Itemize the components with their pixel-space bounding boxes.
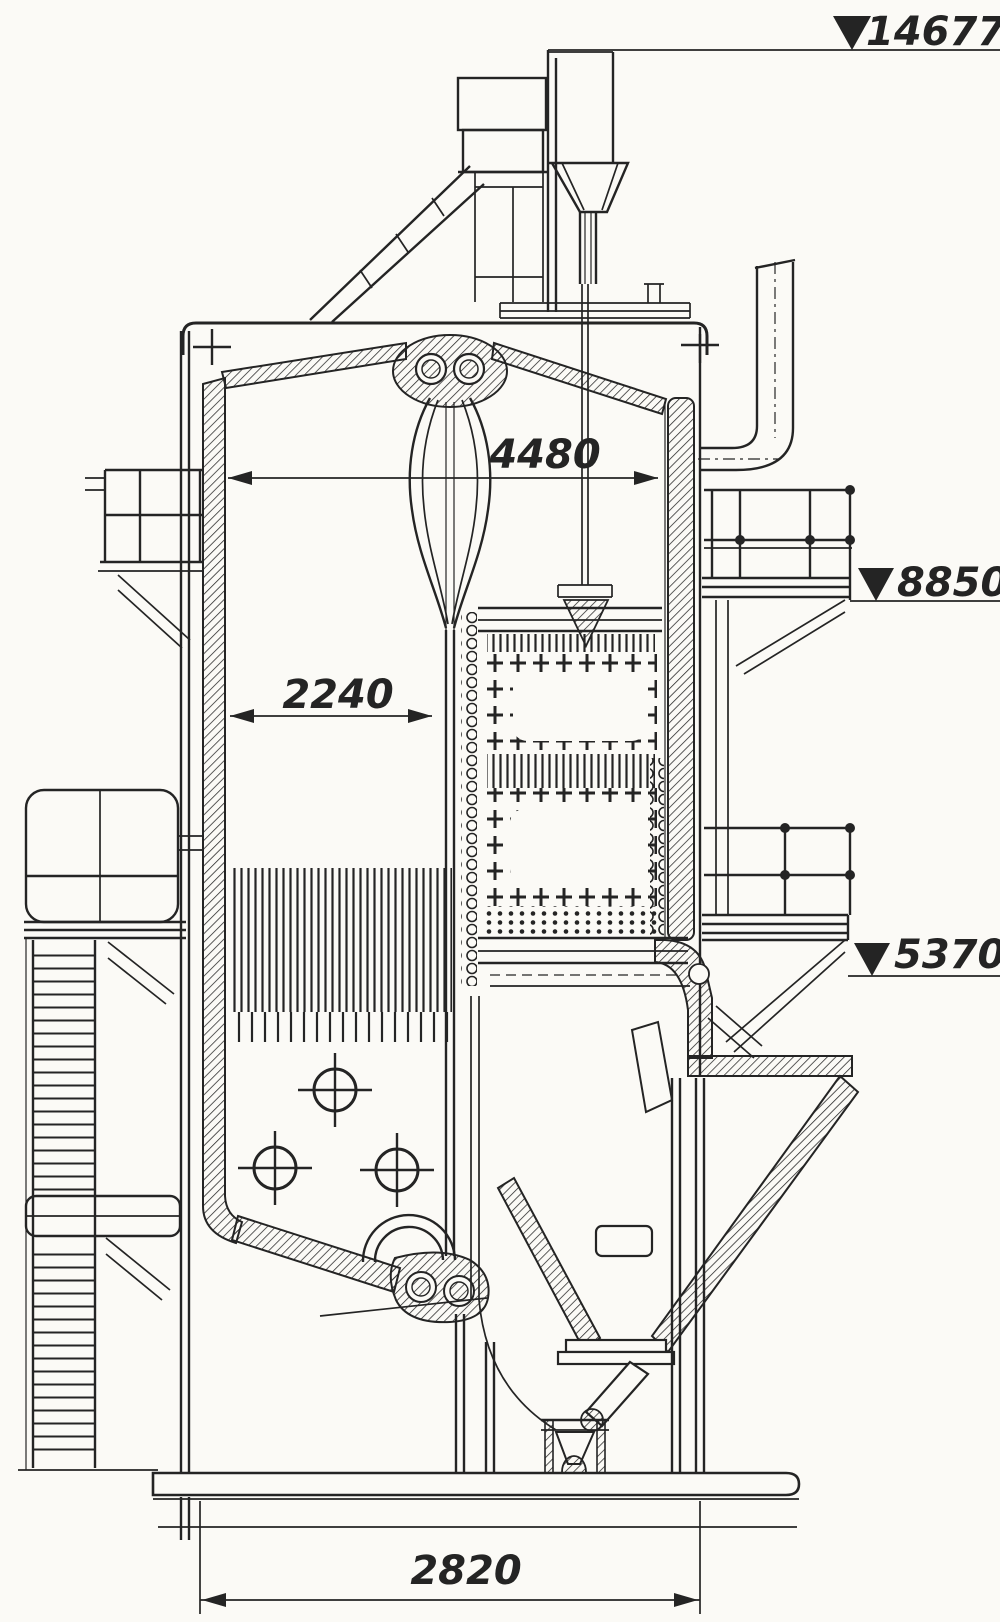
roof-tube-band-right bbox=[492, 343, 666, 414]
hopper-right-slope bbox=[652, 1076, 858, 1352]
roof-tube-band-left bbox=[222, 343, 406, 388]
lower-header bbox=[391, 1252, 489, 1322]
gas-outlet-elbow bbox=[655, 940, 712, 1058]
left-ladder bbox=[26, 938, 95, 1470]
elevation-label-mid: 8850 bbox=[897, 560, 1000, 606]
left-wall-bracket bbox=[85, 470, 203, 648]
elevation-mark-low: 5370 bbox=[848, 932, 1000, 978]
base-slab bbox=[153, 1473, 799, 1499]
elevation-label-top: 14677 bbox=[866, 9, 1000, 55]
burner-lower-left bbox=[238, 1131, 312, 1205]
top-platform bbox=[500, 284, 690, 318]
coal-bunker bbox=[548, 163, 628, 284]
elevation-mark-top: 14677 bbox=[548, 9, 1000, 55]
hopper-outlet-flange bbox=[558, 1340, 674, 1364]
tube-bank-mid bbox=[487, 754, 655, 788]
left-platform-mid bbox=[26, 1196, 180, 1236]
hopper-baffle bbox=[632, 1022, 672, 1112]
superheater-lower bbox=[485, 788, 657, 906]
top-access-stairs bbox=[310, 166, 484, 322]
left-panel-upper bbox=[26, 790, 203, 922]
furnace-tube-screen bbox=[233, 868, 452, 1042]
support-columns bbox=[456, 1078, 704, 1473]
tube-bank-dots bbox=[485, 906, 657, 936]
steam-drum bbox=[393, 335, 507, 407]
superheater-upper bbox=[485, 634, 657, 754]
platform-8850 bbox=[702, 485, 855, 674]
dim-label-drum-width: 4480 bbox=[488, 432, 600, 478]
left-brace-mid bbox=[106, 1238, 170, 1300]
rear-tube-wall bbox=[650, 758, 664, 936]
elevation-label-low: 5370 bbox=[894, 932, 1000, 978]
casing-column-left bbox=[181, 331, 189, 1540]
left-brace-upper bbox=[108, 942, 174, 1004]
vent-pipe bbox=[698, 260, 795, 470]
register-mark-left bbox=[193, 329, 231, 365]
support-columns-mid bbox=[716, 600, 728, 915]
dimension-furnace-width: 2240 bbox=[230, 672, 432, 723]
hopper-left-slope bbox=[498, 1178, 600, 1350]
elevation-mark-mid: 8850 bbox=[850, 560, 1000, 606]
dimension-base-width: 2820 bbox=[200, 1501, 700, 1614]
dimension-drum-width: 4480 bbox=[228, 432, 658, 485]
shaft-right-wall bbox=[665, 398, 694, 940]
dim-label-furnace-width: 2240 bbox=[282, 672, 393, 718]
left-platform-upper-floor bbox=[24, 922, 186, 938]
platform-5370 bbox=[702, 823, 855, 1052]
shaft-left-tube-wall bbox=[461, 612, 477, 986]
flue-duct-boxes bbox=[458, 50, 613, 312]
furnace-left-wall bbox=[203, 378, 242, 1243]
boiler-sectional-drawing: 14677 8850 5370 4480 2240 2820 bbox=[0, 0, 1000, 1622]
hopper-manhole bbox=[596, 1226, 652, 1256]
outlet-duct-band bbox=[688, 1056, 852, 1076]
burner-lower-right bbox=[360, 1133, 434, 1207]
burner-upper bbox=[298, 1053, 372, 1127]
dim-label-base-width: 2820 bbox=[410, 1548, 521, 1594]
